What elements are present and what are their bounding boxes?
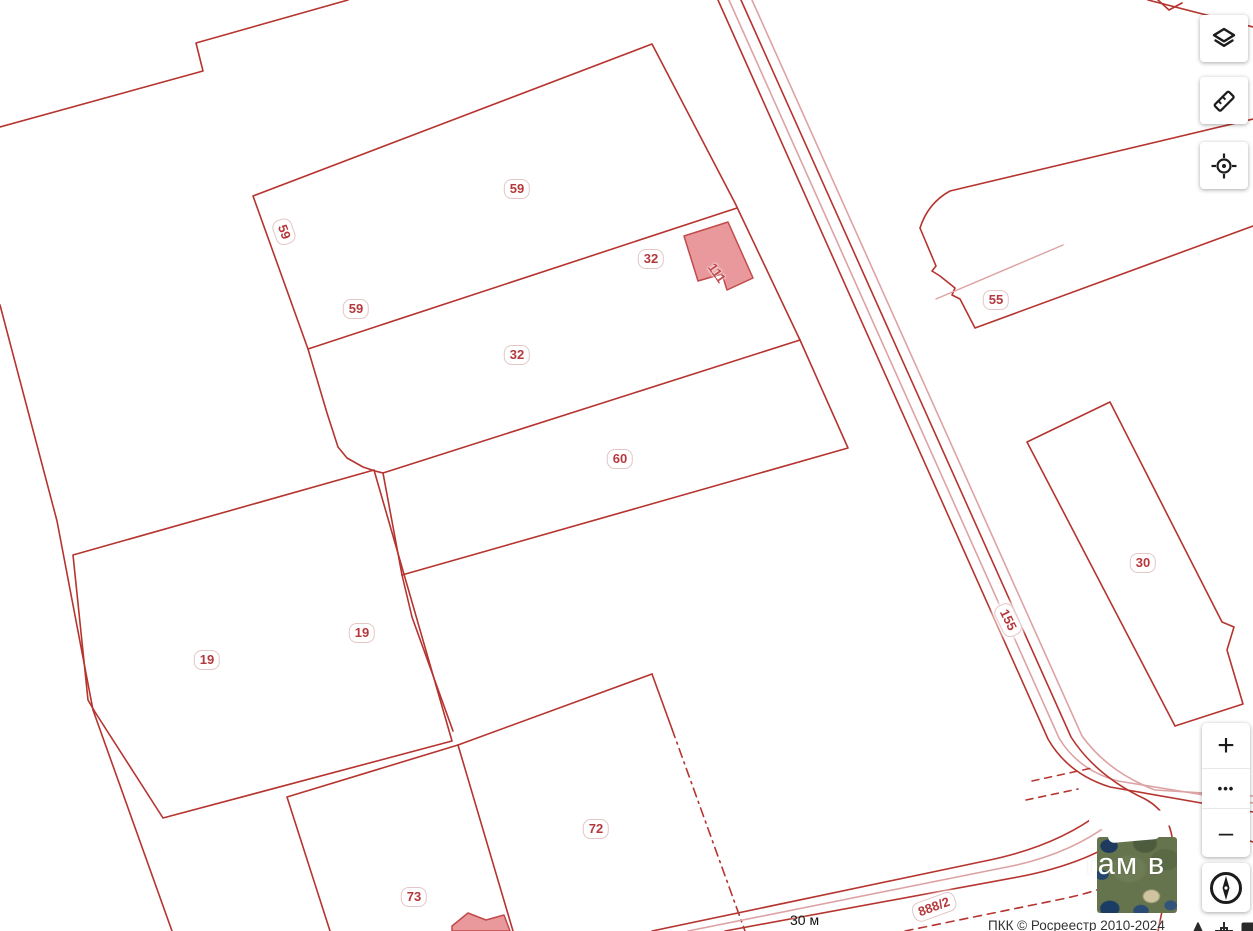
parcel-label-32b: 32	[504, 345, 530, 365]
compass-icon	[1207, 869, 1245, 907]
map-viewport: 59 59 59 32 32 60 19 19 72 73 55 30 111 …	[0, 0, 1253, 931]
parcel-label-19a: 19	[194, 650, 220, 670]
locate-button[interactable]	[1200, 142, 1248, 189]
attribution: ПКК © Росреестр 2010-2024	[988, 918, 1165, 931]
zoom-out-button[interactable]: –	[1202, 809, 1250, 855]
map-place-label: гам в	[1086, 846, 1165, 882]
parcel-label-30: 30	[1130, 553, 1156, 573]
zoom-in-button[interactable]: +	[1202, 723, 1250, 768]
zoom-more-button[interactable]: •••	[1202, 768, 1250, 809]
parcel-label-32a: 32	[638, 249, 664, 269]
nav-arrow-icon[interactable]	[1188, 921, 1208, 931]
parcel-label-72: 72	[583, 819, 609, 839]
crosshair-icon	[1210, 152, 1238, 180]
layers-icon	[1211, 26, 1237, 52]
parcel-label-59a: 59	[504, 179, 530, 199]
scale-label: 30 м	[790, 912, 819, 928]
ruler-icon	[1211, 88, 1237, 114]
layers-button[interactable]	[1200, 15, 1248, 62]
crosshair-small-icon[interactable]	[1214, 921, 1234, 931]
measure-button[interactable]	[1200, 77, 1248, 124]
zoom-control: + ••• –	[1202, 723, 1250, 857]
parcel-label-60: 60	[607, 449, 633, 469]
building-footprint-bottom	[452, 913, 510, 931]
parcel-label-55: 55	[983, 290, 1009, 310]
dark-square-icon[interactable]	[1240, 921, 1253, 931]
parcel-label-19b: 19	[349, 623, 375, 643]
parcel-label-73: 73	[401, 887, 427, 907]
parcel-label-59c: 59	[343, 299, 369, 319]
compass-button[interactable]	[1202, 863, 1250, 912]
